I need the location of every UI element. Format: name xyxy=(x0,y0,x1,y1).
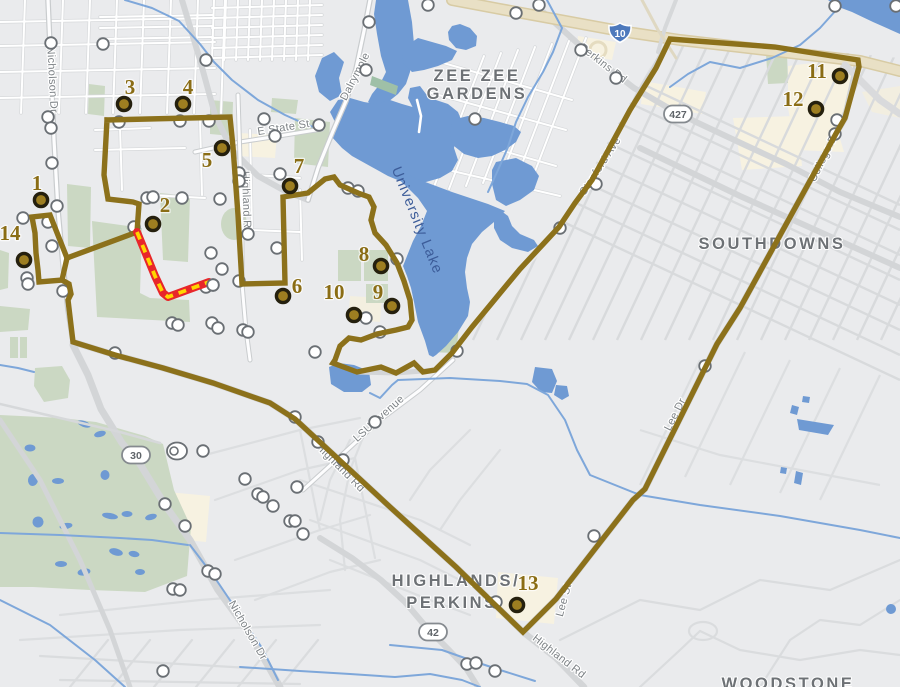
svg-text:3: 3 xyxy=(125,75,136,99)
svg-text:30: 30 xyxy=(130,450,142,462)
svg-text:5: 5 xyxy=(202,148,213,172)
svg-text:10: 10 xyxy=(614,29,626,40)
svg-text:42: 42 xyxy=(427,627,439,639)
svg-text:4: 4 xyxy=(183,75,194,99)
svg-text:9: 9 xyxy=(373,280,384,304)
svg-text:GARDENS: GARDENS xyxy=(427,85,528,103)
svg-text:ZEE ZEE: ZEE ZEE xyxy=(434,67,521,85)
svg-text:1: 1 xyxy=(32,171,43,195)
svg-text:7: 7 xyxy=(294,154,305,178)
svg-text:8: 8 xyxy=(359,242,370,266)
svg-text:12: 12 xyxy=(783,87,804,111)
svg-text:427: 427 xyxy=(669,109,687,121)
svg-text:6: 6 xyxy=(292,274,303,298)
svg-text:13: 13 xyxy=(518,571,539,595)
svg-text:2: 2 xyxy=(160,193,171,217)
svg-text:10: 10 xyxy=(324,280,345,304)
svg-text:11: 11 xyxy=(807,59,827,83)
svg-text:14: 14 xyxy=(0,221,21,245)
svg-text:HIGHLANDS/: HIGHLANDS/ xyxy=(392,572,521,590)
svg-text:WOODSTONE: WOODSTONE xyxy=(721,675,854,687)
